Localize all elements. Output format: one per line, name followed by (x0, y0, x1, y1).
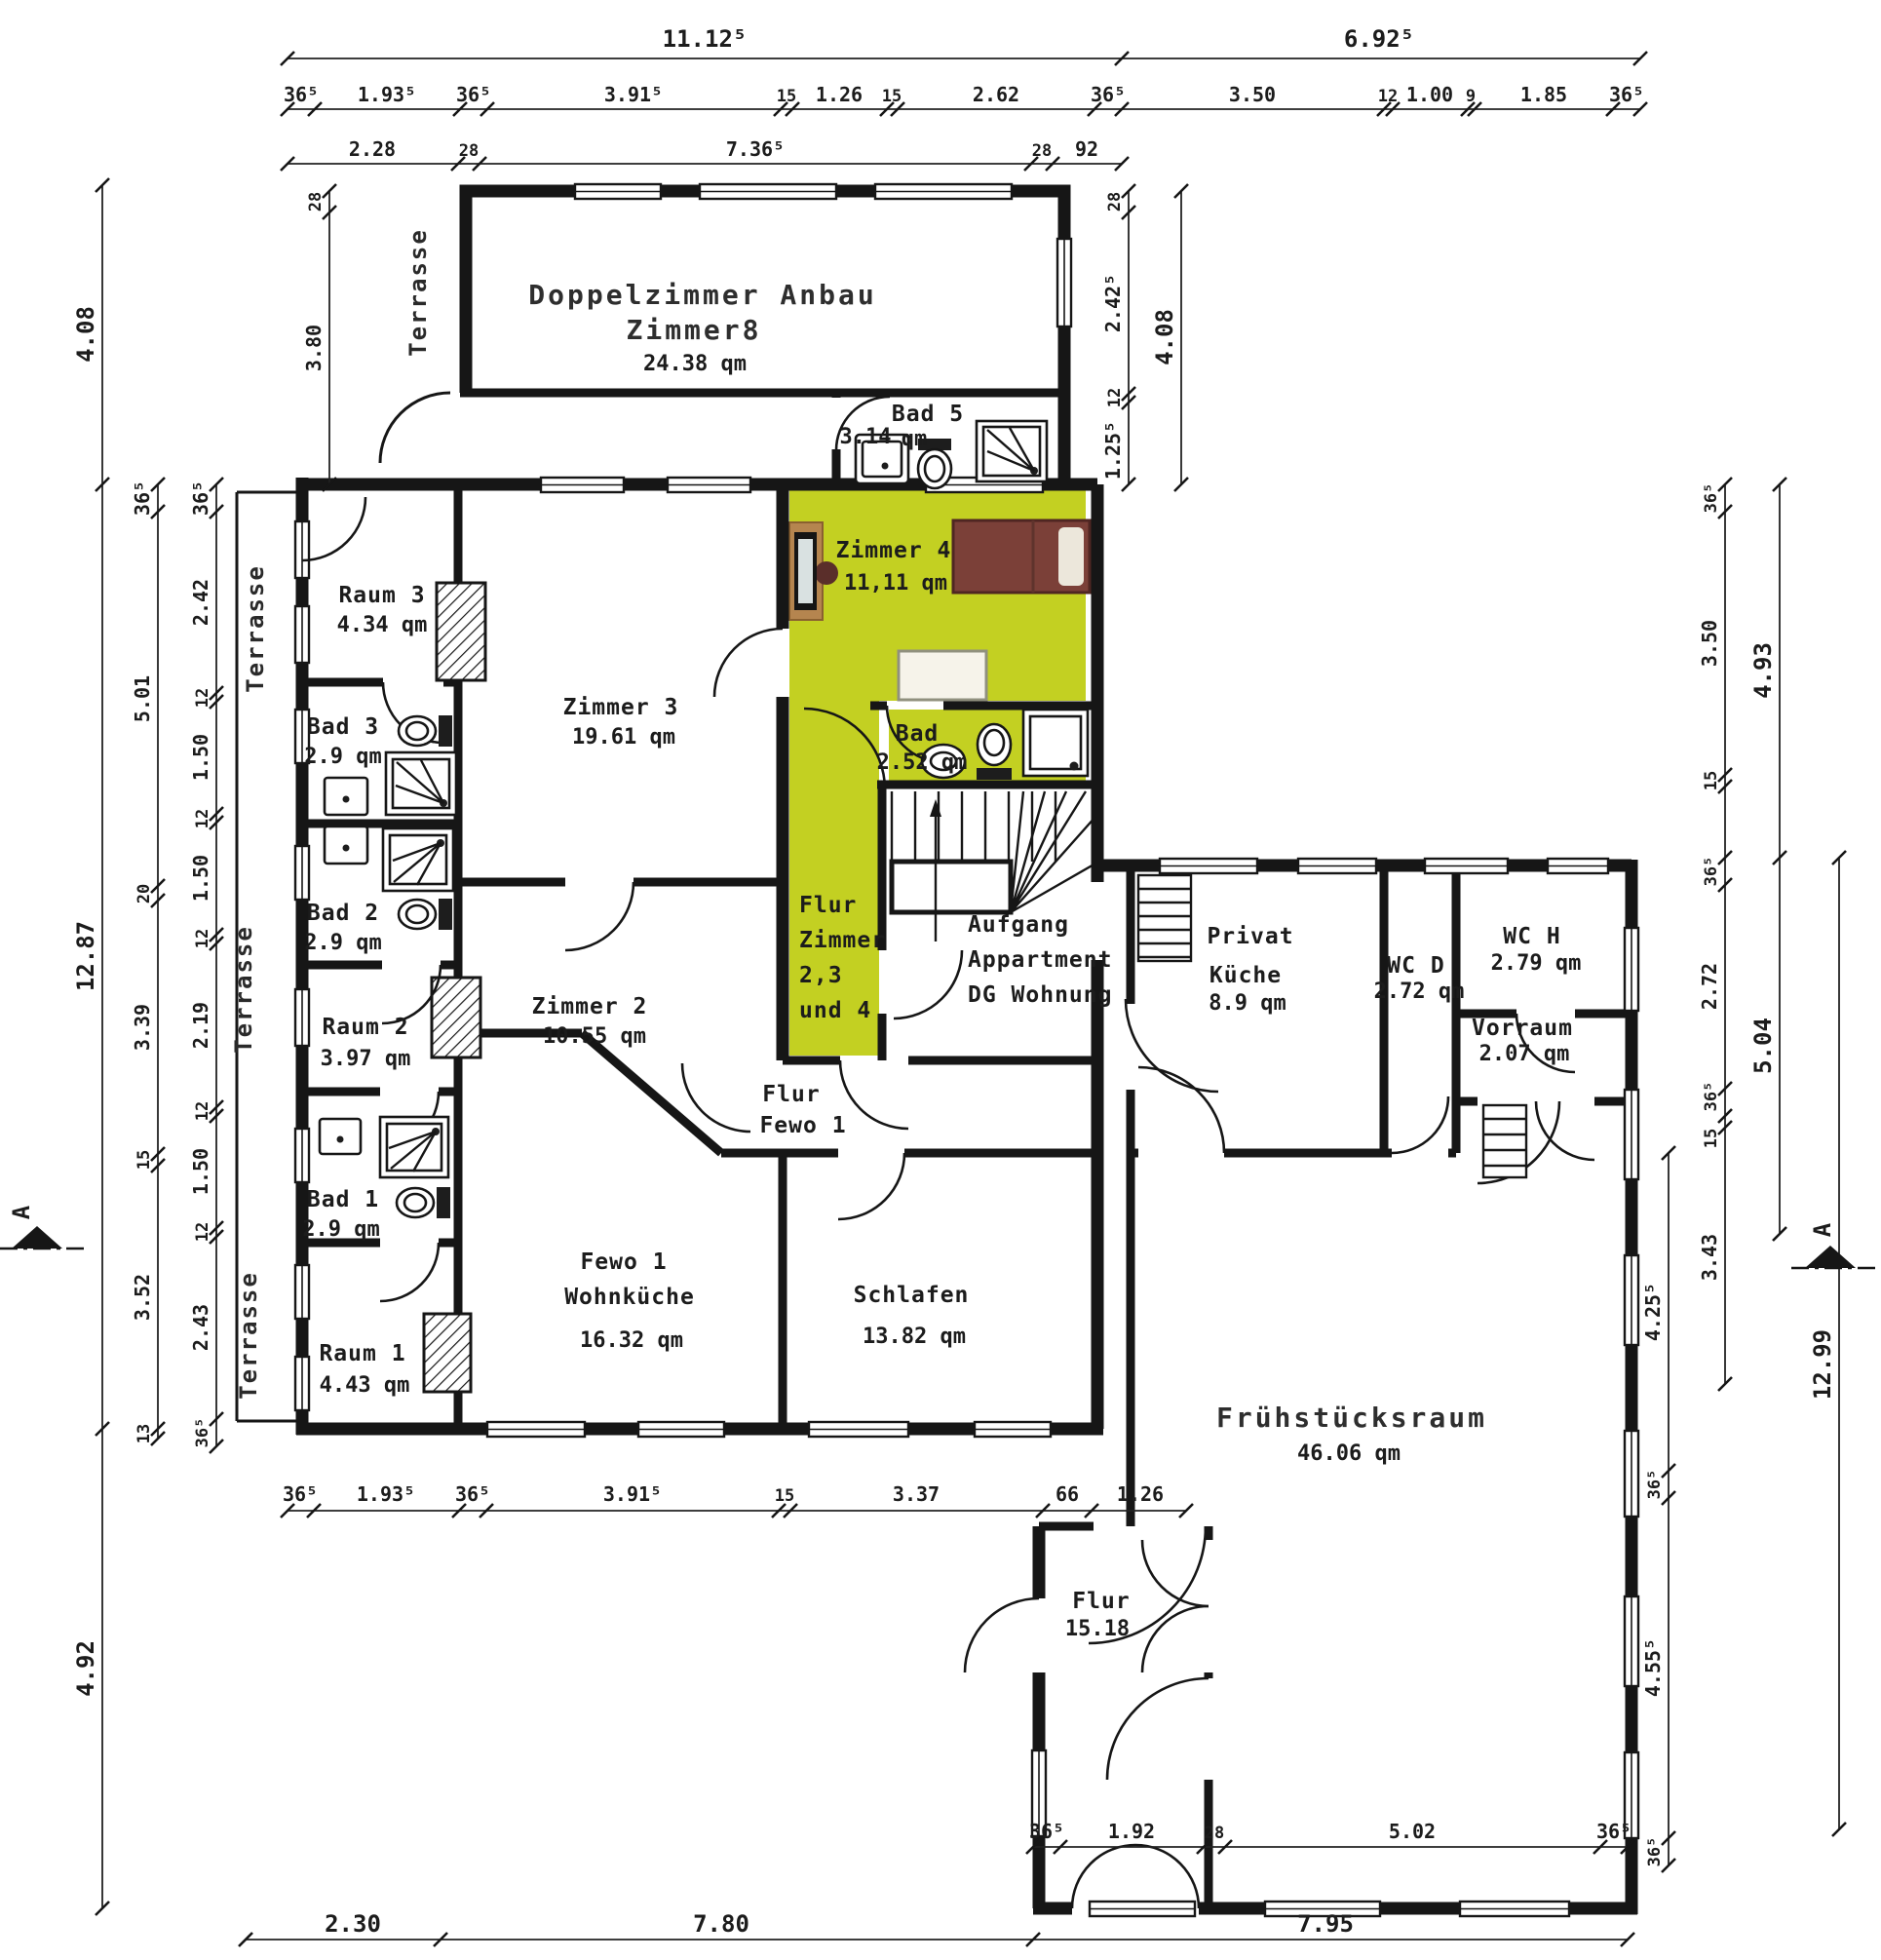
dim-label: 1.93⁵ (358, 83, 416, 106)
room-area-bad3: 2.9 qm (304, 745, 381, 769)
dim-label: 15 (882, 87, 902, 106)
dim-label: 13 (134, 1424, 154, 1443)
dim-label: 3.37 (893, 1482, 940, 1506)
dim-label: 6.92⁵ (1344, 25, 1414, 53)
room-area-zimmer4: 11,11 qm (844, 571, 947, 596)
dim-label: 12 (193, 809, 212, 828)
room-area-wch: 2.79 qm (1491, 951, 1582, 976)
staircase-vorraum (1483, 1105, 1526, 1177)
bed-pillow (1058, 527, 1084, 586)
dim-label: 15 (775, 1486, 794, 1506)
room-label-aufgang-3: DG Wohnung (968, 982, 1112, 1008)
dim-label: 4.08 (1151, 309, 1178, 365)
dim-label: 7.36⁵ (726, 137, 785, 161)
room-label-fewo1-2: Wohnküche (564, 1285, 695, 1310)
dim-label: 36⁵ (193, 1418, 212, 1448)
dim-label: 9 (1466, 87, 1476, 106)
section-label: A (1809, 1222, 1836, 1237)
dim-label: 36⁵ (1609, 83, 1644, 106)
dim-label: 3.91⁵ (603, 1482, 662, 1506)
door-arc-zimmer2 (565, 882, 633, 950)
tv-board-knob (815, 561, 838, 585)
door-arc-raum1 (380, 1243, 439, 1301)
sink-drain (343, 796, 350, 803)
section-marker-left: A (0, 1205, 90, 1249)
room-label-zimmer4: Zimmer 4 (836, 538, 952, 563)
room-label-vorraum: Vorraum (1472, 1016, 1573, 1041)
dim-label: 12 (193, 1101, 212, 1121)
room-label-flur-zimmer-1: Flur (799, 893, 857, 918)
room-area-unit-bad5: qm (902, 427, 928, 451)
tv-screen (798, 539, 813, 603)
dim-label: 12.99 (1809, 1329, 1836, 1400)
floor-plan-page: A A Doppelzimmer Anbau Zimmer8 24.38 qm … (0, 0, 1881, 1960)
room-label-flur-zimmer-4: und 4 (799, 998, 871, 1023)
toilet-tank (439, 899, 452, 930)
room-area-fewo1: 16.32 qm (580, 1328, 683, 1353)
dim-label: 28 (1105, 192, 1125, 211)
dim-label: 36⁵ (284, 83, 319, 106)
room-area-raum1: 4.43 qm (320, 1373, 410, 1398)
door-arc-flur-south-1 (1072, 1845, 1135, 1908)
room-area-zimmer3: 19.61 qm (572, 725, 675, 749)
wall-diagonal (582, 1033, 721, 1153)
room-area-raum3: 4.34 qm (337, 613, 428, 637)
dim-label: 15 (1702, 771, 1721, 790)
door-arc-flur-east-2 (1142, 1606, 1209, 1672)
room-area-zimmer2: 10.55 qm (543, 1024, 646, 1049)
section-label: A (8, 1205, 35, 1219)
dim-label: 5.02 (1389, 1820, 1436, 1843)
room-label-flur-fewo-1: Flur (762, 1082, 820, 1107)
floor-plan: A A Doppelzimmer Anbau Zimmer8 24.38 qm … (0, 0, 1881, 1960)
door-arc-wcd (1392, 1096, 1448, 1153)
door-arc-fewo-entry (682, 1063, 750, 1132)
toilet-tank (437, 1187, 450, 1218)
room-label-flur-eg: Flur (1072, 1589, 1130, 1614)
room-area-doppelzimmer: 24.38 qm (643, 352, 747, 376)
dim-label: 1.93⁵ (357, 1482, 415, 1506)
door-arc-raum3 (302, 497, 365, 560)
room-label-aufgang-2: Appartment (968, 947, 1112, 973)
room-area-bad-og: 2.52 qm (877, 750, 968, 775)
chimney-icon (432, 978, 480, 1057)
dim-label: 36⁵ (1702, 857, 1721, 887)
room-label-privat-1: Privat (1207, 924, 1293, 949)
room-label-raum3: Raum 3 (338, 583, 425, 608)
door-arc-flur-south-2 (1135, 1845, 1199, 1908)
door-arc-flurfewo (840, 1060, 908, 1129)
room-area-bad5: 3.14 (840, 425, 892, 449)
dim-label: 2.43 (189, 1304, 212, 1351)
toilet-seat (925, 456, 944, 481)
room-label-zimmer3: Zimmer 3 (563, 695, 679, 720)
staircase-kueche-side (1138, 875, 1191, 961)
door-arc-zimmer3 (714, 629, 783, 697)
dim-label: 36⁵ (455, 1482, 490, 1506)
dim-label: 12 (193, 688, 212, 708)
dim-label: 3.39 (131, 1004, 154, 1051)
room-label-raum2: Raum 2 (322, 1015, 408, 1040)
dim-label: 36⁵ (456, 83, 491, 106)
dim-label: 28 (1032, 141, 1052, 161)
terrasse-label: Terrasse (230, 925, 257, 1054)
door-arc-corridor-stair (894, 950, 962, 1018)
dim-label: 4.25⁵ (1641, 1283, 1665, 1341)
dim-label: 36⁵ (189, 480, 212, 516)
dim-label: 2.42⁵ (1101, 274, 1125, 332)
dim-label: 15 (134, 1150, 154, 1170)
dim-label: 28 (306, 192, 326, 211)
room-label-doppelzimmer2: Zimmer8 (626, 314, 761, 346)
dim-label: 15 (777, 87, 796, 106)
room-label-bad1: Bad 1 (307, 1187, 379, 1212)
dim-label: 1.26 (1117, 1482, 1164, 1506)
dim-label: 3.91⁵ (604, 83, 663, 106)
dim-label: 36⁵ (1645, 1837, 1665, 1867)
room-area-bad2: 2.9 qm (304, 931, 381, 955)
dim-label: 36⁵ (283, 1482, 318, 1506)
door-arc-schlafen (838, 1153, 904, 1219)
dim-label: 5.01 (131, 675, 154, 722)
chimney-icon (437, 583, 485, 680)
room-label-privat-2: Küche (1209, 963, 1282, 988)
room-area-privat: 8.9 qm (1209, 991, 1286, 1016)
dim-label: 4.92 (72, 1640, 99, 1697)
room-label-aufgang-1: Aufgang (968, 912, 1069, 938)
dim-label: 3.50 (1698, 620, 1721, 667)
dim-label: 1.50 (189, 855, 212, 902)
dim-label: 2.30 (325, 1910, 381, 1938)
dim-label: 3.52 (131, 1274, 154, 1321)
room-label-fewo1-1: Fewo 1 (580, 1249, 667, 1275)
dim-label: 36⁵ (1029, 1820, 1064, 1843)
dim-label: 1.25⁵ (1101, 421, 1125, 480)
room-label-bad3: Bad 3 (307, 714, 379, 740)
room-label-wcd: WC D (1387, 953, 1444, 979)
terrasse-label: Terrasse (404, 228, 432, 357)
door-arc-flur-west (965, 1598, 1039, 1672)
garden-curve (380, 393, 450, 463)
dim-label: 15 (1702, 1129, 1721, 1148)
dim-label: 3.50 (1229, 83, 1276, 106)
room-area-raum2: 3.97 qm (321, 1047, 411, 1071)
dim-label: 12.87 (72, 921, 99, 991)
room-area-flur-eg: 15.18 (1065, 1617, 1130, 1641)
toilet-seat (404, 1194, 426, 1211)
dim-label: 7.80 (693, 1910, 749, 1938)
door-arc-kueche-west (1126, 999, 1218, 1092)
sink-drain (882, 463, 889, 470)
door-arc-flur-east-3 (1107, 1678, 1209, 1780)
terrasse-label: Terrasse (242, 564, 269, 693)
dim-label: 3.43 (1698, 1234, 1721, 1281)
room-label-raum1: Raum 1 (319, 1341, 405, 1366)
shower-tray (1030, 716, 1081, 769)
toilet-tank (977, 768, 1012, 780)
shower-drain (1070, 762, 1079, 771)
dim-label: 12 (193, 929, 212, 948)
dim-label: 12 (193, 1222, 212, 1242)
terrasse-label: Terrasse (235, 1271, 262, 1400)
room-label-zimmer2: Zimmer 2 (532, 994, 648, 1019)
dim-label: 36⁵ (1596, 1820, 1631, 1843)
dim-label: 5.04 (1749, 1018, 1777, 1074)
dim-label: 12 (1105, 388, 1125, 407)
dim-label: 2.72 (1698, 963, 1721, 1010)
dim-label: 1.50 (189, 1148, 212, 1195)
room-label-fruehstueck: Frühstücksraum (1216, 1402, 1487, 1434)
dim-label: 36⁵ (1702, 1082, 1721, 1112)
dim-label: 7.95 (1297, 1910, 1354, 1938)
dim-label: 1.92 (1108, 1820, 1155, 1843)
room-label-schlafen: Schlafen (854, 1283, 970, 1308)
toilet-tank (439, 715, 452, 747)
dim-label: 2.28 (349, 137, 396, 161)
section-triangle-icon (12, 1226, 62, 1249)
dim-label: 66 (1056, 1482, 1079, 1506)
dim-label: 28 (1205, 1824, 1224, 1843)
dim-label: 4.55⁵ (1641, 1638, 1665, 1697)
chimney-icon (424, 1314, 471, 1392)
room-label-flur-fewo-2: Fewo 1 (759, 1113, 846, 1138)
dim-label: 2.19 (189, 1002, 212, 1049)
door-arc-flur-east-1 (1142, 1540, 1209, 1606)
room-area-schlafen: 13.82 qm (863, 1325, 966, 1349)
room-label-bad-og: Bad (896, 721, 940, 747)
toilet-seat (406, 905, 428, 923)
dim-label: 36⁵ (1645, 1470, 1665, 1500)
wall-anbau (466, 191, 1064, 484)
room-label-bad2: Bad 2 (307, 901, 379, 926)
room-label-flur-zimmer-3: 2,3 (799, 963, 843, 988)
sink-drain (337, 1136, 344, 1143)
dim-label: 4.08 (72, 306, 99, 363)
dim-label: 36⁵ (1702, 483, 1721, 514)
dim-label: 12 (1378, 87, 1398, 106)
dim-label: 1.00 (1406, 83, 1453, 106)
dim-label: 11.12⁵ (663, 25, 748, 53)
section-triangle-icon (1805, 1246, 1856, 1268)
room-area-fruehstueck: 46.06 qm (1297, 1441, 1401, 1466)
dim-label: 36⁵ (131, 480, 154, 516)
dim-label: 2.42 (189, 579, 212, 626)
dim-label: 92 (1075, 137, 1098, 161)
dim-label: 2.62 (973, 83, 1019, 106)
room-label-doppelzimmer: Doppelzimmer Anbau (528, 279, 876, 311)
dim-label: 1.85 (1520, 83, 1567, 106)
table (899, 651, 986, 700)
sink-drain (343, 845, 350, 852)
room-area-vorraum: 2.07 qm (1479, 1042, 1570, 1066)
dim-label: 4.93 (1749, 642, 1777, 699)
dim-label: 36⁵ (1091, 83, 1126, 106)
room-area-wcd: 2.72 qm (1374, 980, 1465, 1004)
toilet-seat (984, 730, 1004, 755)
door-arc-kueche-south (1138, 1067, 1224, 1153)
dim-label: 1.50 (189, 734, 212, 781)
dim-label: 28 (459, 141, 479, 161)
dim-label: 20 (134, 884, 154, 903)
door-arc-vorraum-2 (1536, 1101, 1594, 1160)
room-label-wch: WC H (1503, 924, 1560, 949)
dim-label: 1.26 (816, 83, 863, 106)
toilet-seat (406, 722, 428, 740)
section-marker-right: A (1791, 1222, 1881, 1268)
room-label-bad5: Bad 5 (892, 402, 964, 427)
room-area-bad1: 2.9 qm (302, 1217, 379, 1242)
room-label-flur-zimmer-2: Zimmer (799, 928, 886, 953)
dim-label: 3.80 (302, 325, 326, 371)
